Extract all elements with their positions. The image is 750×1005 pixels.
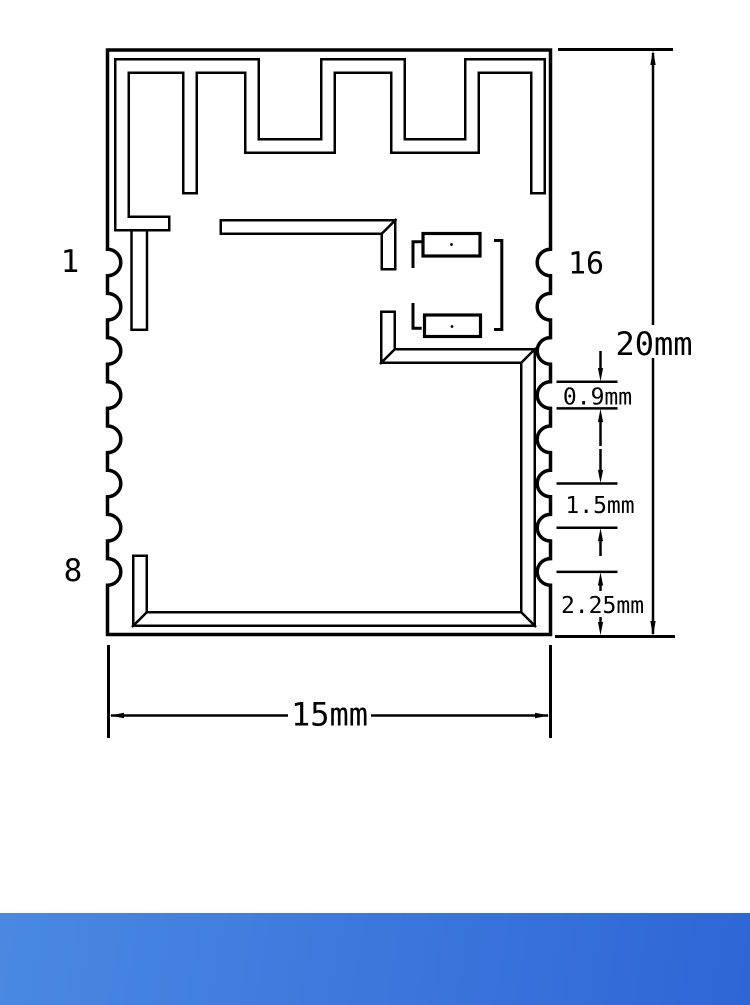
meander-antenna-trace xyxy=(122,66,538,224)
arrowhead-up xyxy=(598,572,603,585)
bracket-bottom-left xyxy=(413,303,422,328)
pad-center-dot xyxy=(451,325,454,328)
bracket-right xyxy=(494,241,502,330)
footer-accent-bar xyxy=(0,913,750,1005)
bracket-top-left xyxy=(413,242,422,268)
pin-label-1: 1 xyxy=(61,244,80,280)
dim-pad-pitch-label: 1.5mm xyxy=(565,493,634,519)
dimension-bottom-offset: 2.25mm xyxy=(557,572,645,635)
module-mechanical-drawing: 20mm 0.9mm 1.5mm 2.25mm 15mm xyxy=(0,0,750,913)
dimension-overall-width: 15mm xyxy=(109,645,551,738)
pin-label-16: 16 xyxy=(568,247,604,282)
dimension-overall-height: 20mm xyxy=(555,50,693,637)
arrowhead-down xyxy=(598,470,603,483)
component-pads xyxy=(423,234,481,337)
dim-pad-width-label: 0.9mm xyxy=(563,385,632,411)
arrowhead-right xyxy=(535,713,549,718)
pad-center-dot xyxy=(450,243,453,246)
dimension-pad-width: 0.9mm xyxy=(557,351,633,446)
arrowhead-up xyxy=(598,409,603,422)
arrowhead-down xyxy=(598,368,603,381)
arrowhead-up xyxy=(598,528,603,541)
arrowhead-down xyxy=(650,621,655,636)
matching-trace-bar xyxy=(220,219,397,271)
ground-plane-outline xyxy=(132,311,536,628)
rf-feed-trace xyxy=(132,230,148,329)
pin-label-8: 8 xyxy=(64,553,83,589)
dim-bottom-offset-label: 2.25mm xyxy=(561,593,644,619)
arrowhead-left xyxy=(110,713,124,718)
arrowhead-down xyxy=(598,622,603,635)
dim-width-label: 15mm xyxy=(291,696,368,734)
arrowhead-up xyxy=(650,51,655,66)
dim-height-label: 20mm xyxy=(615,325,692,363)
page: 20mm 0.9mm 1.5mm 2.25mm 15mm xyxy=(0,0,750,1005)
dimension-pad-pitch: 1.5mm xyxy=(557,449,635,556)
